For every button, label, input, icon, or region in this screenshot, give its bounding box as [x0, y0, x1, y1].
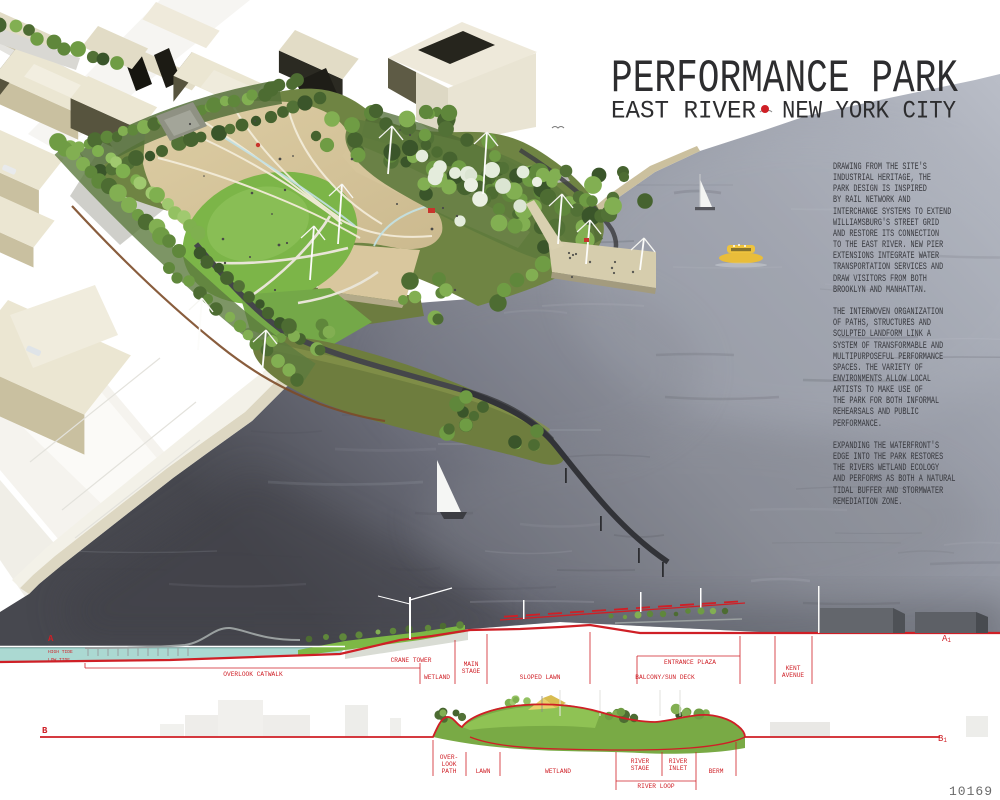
svg-text:PATH: PATH: [442, 768, 457, 775]
svg-text:LOW TIDE: LOW TIDE: [48, 657, 70, 663]
svg-text:RIVER LOOP: RIVER LOOP: [637, 783, 674, 790]
svg-text:OVERLOOK CATWALK: OVERLOOK CATWALK: [223, 671, 283, 678]
svg-text:STAGE: STAGE: [631, 765, 650, 772]
svg-text:EAST RIVER: EAST RIVER: [611, 97, 756, 126]
svg-text:CRANE TOWER: CRANE TOWER: [391, 657, 432, 664]
svg-text:KENT: KENT: [786, 665, 801, 672]
svg-text:WETLAND: WETLAND: [545, 768, 571, 775]
svg-text:BERM: BERM: [709, 768, 724, 775]
svg-text:AVENUE: AVENUE: [782, 672, 805, 679]
svg-text:WETLAND: WETLAND: [424, 674, 450, 681]
svg-text:LAWN: LAWN: [476, 768, 491, 775]
svg-text:STAGE: STAGE: [462, 668, 481, 675]
svg-text:LOOK: LOOK: [442, 761, 457, 768]
svg-text:10169: 10169: [949, 784, 993, 799]
svg-text:A: A: [48, 634, 54, 644]
svg-text:B: B: [42, 726, 48, 736]
svg-text:OVER-: OVER-: [440, 754, 459, 761]
svg-text:MAIN: MAIN: [464, 661, 479, 668]
svg-text:INLET: INLET: [669, 765, 688, 772]
svg-text:SLOPED LAWN: SLOPED LAWN: [520, 674, 561, 681]
svg-text:RIVER: RIVER: [669, 758, 688, 765]
svg-text:NEW YORK CITY: NEW YORK CITY: [782, 97, 956, 126]
svg-text:BALCONY/SUN DECK: BALCONY/SUN DECK: [635, 674, 695, 681]
svg-text:HIGH TIDE: HIGH TIDE: [48, 649, 73, 655]
svg-text:RIVER: RIVER: [631, 758, 650, 765]
svg-text:ENTRANCE PLAZA: ENTRANCE PLAZA: [664, 659, 716, 666]
